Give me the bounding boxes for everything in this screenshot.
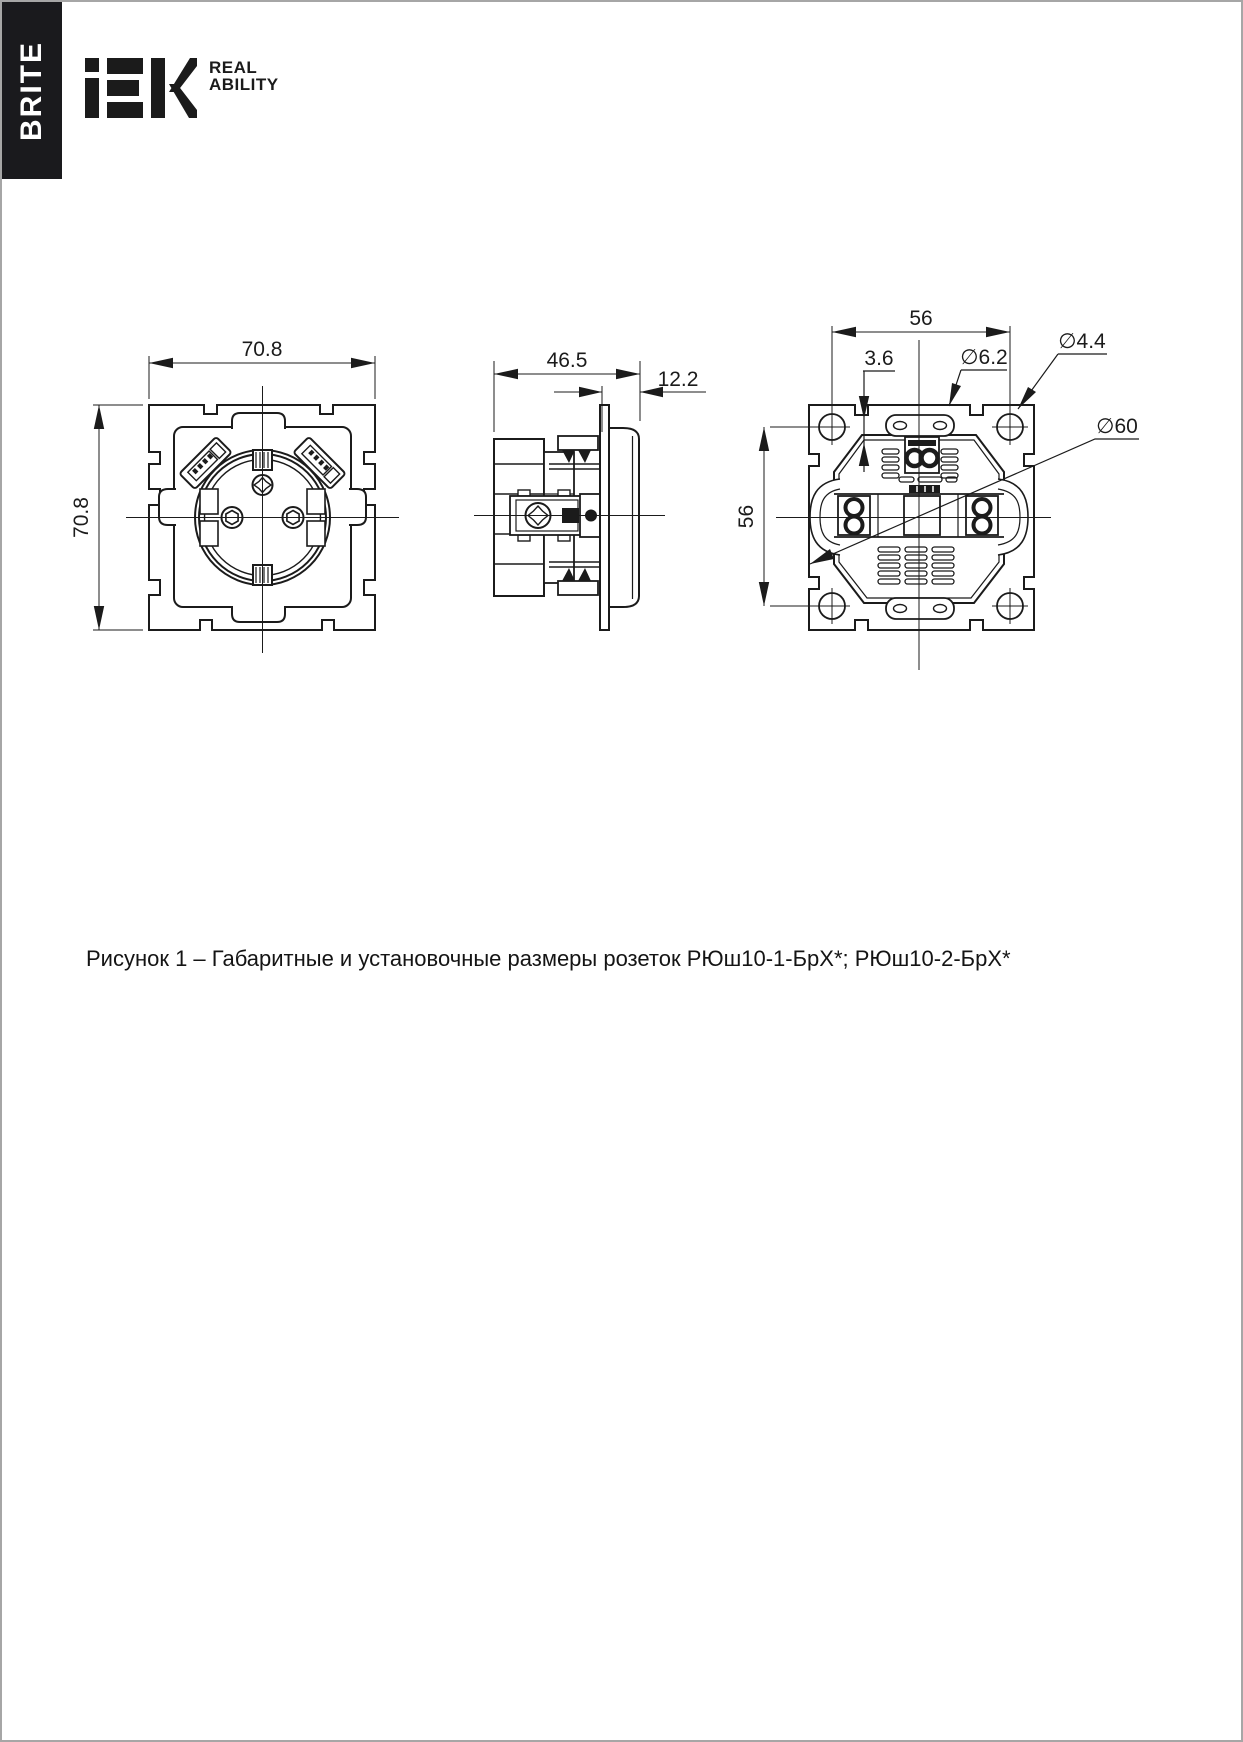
- rear-hole-dia-dimension: ∅4.4: [1018, 330, 1107, 409]
- side-view-drawing: 46.5 12.2: [474, 349, 706, 630]
- dim-side-protrusion: 12.2: [658, 368, 699, 391]
- rear-view-drawing: 56 56 3.6 ∅6.2: [735, 307, 1139, 670]
- side-protrusion-dimension: 12.2: [554, 368, 706, 432]
- dim-rear-slot-dia: ∅6.2: [960, 346, 1008, 369]
- dim-side-depth: 46.5: [547, 349, 588, 372]
- figure-caption: Рисунок 1 – Габаритные и установочные ра…: [86, 946, 1011, 972]
- dim-front-height: 70.8: [70, 497, 93, 538]
- front-view-drawing: 70.8 70.8: [70, 338, 399, 653]
- dim-rear-vspacing: 56: [735, 505, 758, 528]
- dim-rear-mech-dia: ∅60: [1096, 415, 1138, 438]
- document-page: BRITE REAL ABILITY: [0, 0, 1243, 1742]
- dim-rear-offset: 3.6: [864, 347, 893, 370]
- dim-rear-hspacing: 56: [909, 307, 932, 330]
- rear-slot-dia-dimension: ∅6.2: [949, 346, 1008, 406]
- side-depth-dimension: 46.5: [494, 349, 640, 432]
- dimension-drawings: 70.8 70.8: [2, 2, 1243, 1742]
- rear-vspacing-dimension: 56: [735, 427, 819, 606]
- dim-front-width: 70.8: [242, 338, 283, 361]
- dim-rear-hole-dia: ∅4.4: [1058, 330, 1106, 353]
